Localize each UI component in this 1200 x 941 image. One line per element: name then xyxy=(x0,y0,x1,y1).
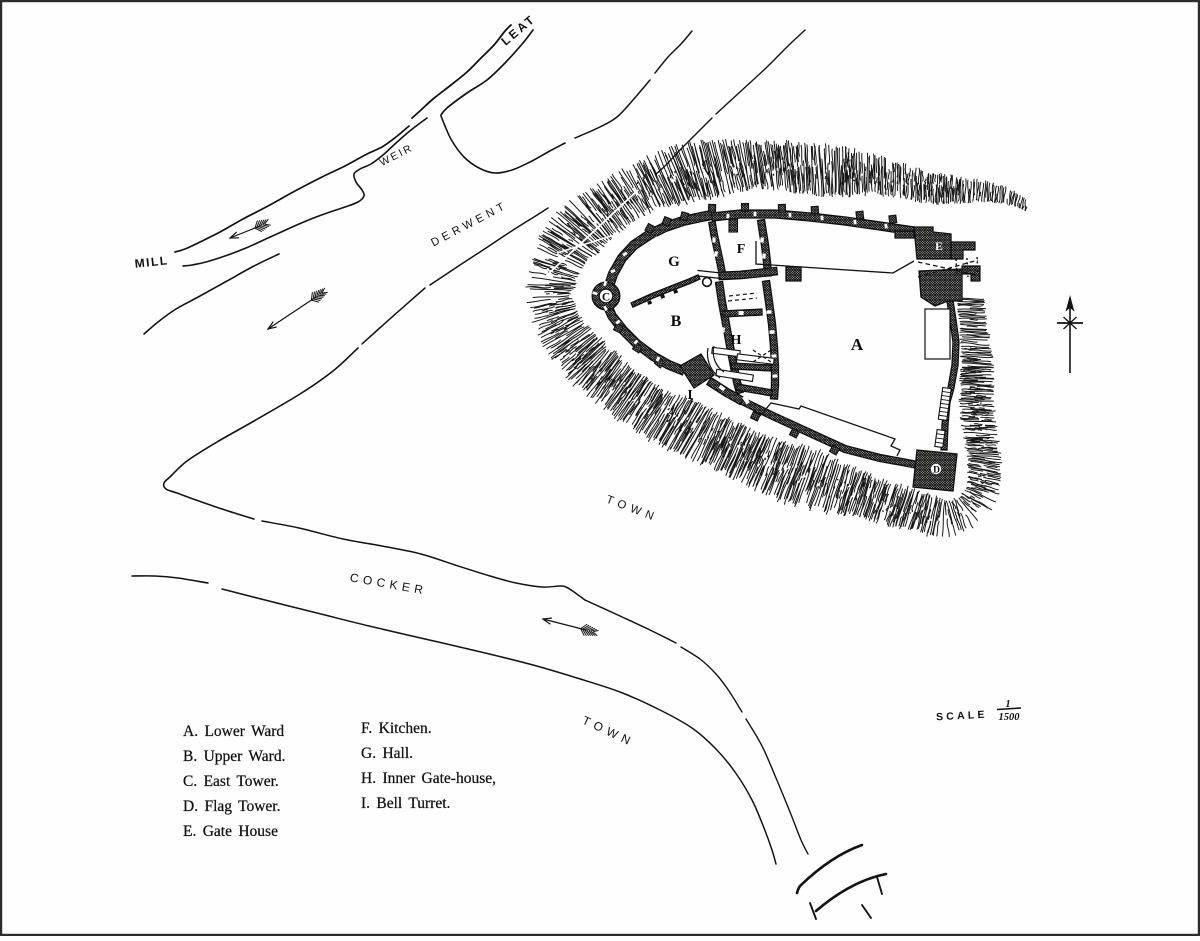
svg-text:1500: 1500 xyxy=(999,712,1021,723)
svg-text:D: D xyxy=(933,466,940,476)
svg-text:H. Inner Gate-house,: H. Inner Gate-house, xyxy=(361,770,496,787)
svg-text:G. Hall.: G. Hall. xyxy=(361,745,413,762)
svg-text:I. Bell Turret.: I. Bell Turret. xyxy=(361,795,450,812)
svg-text:E. Gate House: E. Gate House xyxy=(183,823,278,840)
svg-text:A: A xyxy=(851,335,864,354)
svg-text:F. Kitchen.: F. Kitchen. xyxy=(361,720,432,737)
svg-text:B: B xyxy=(671,313,682,330)
svg-text:F: F xyxy=(737,242,746,257)
svg-text:H: H xyxy=(731,333,742,348)
svg-text:I: I xyxy=(687,387,692,402)
svg-text:G: G xyxy=(668,254,680,270)
svg-text:D. Flag Tower.: D. Flag Tower. xyxy=(183,798,281,815)
svg-text:C. East Tower.: C. East Tower. xyxy=(183,773,279,790)
svg-text:E: E xyxy=(935,241,943,253)
svg-text:A. Lower Ward: A. Lower Ward xyxy=(183,723,284,740)
svg-text:C: C xyxy=(602,292,610,304)
svg-text:B. Upper Ward.: B. Upper Ward. xyxy=(183,748,285,765)
